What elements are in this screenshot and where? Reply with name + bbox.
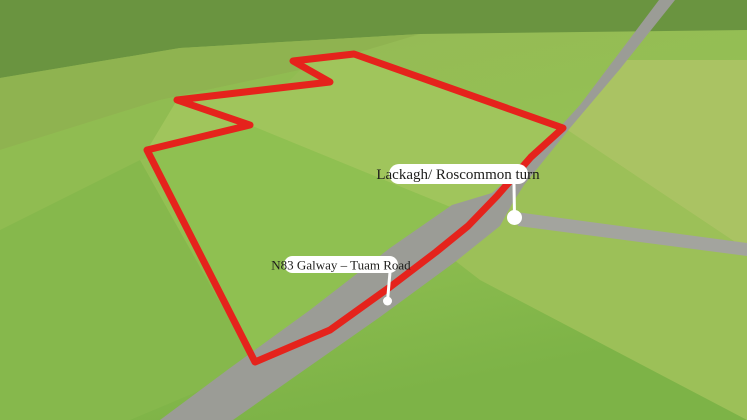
svg-text:N83 Galway – Tuam Road: N83 Galway – Tuam Road — [271, 258, 411, 273]
svg-text:Lackagh/ Roscommon turn: Lackagh/ Roscommon turn — [376, 167, 540, 183]
